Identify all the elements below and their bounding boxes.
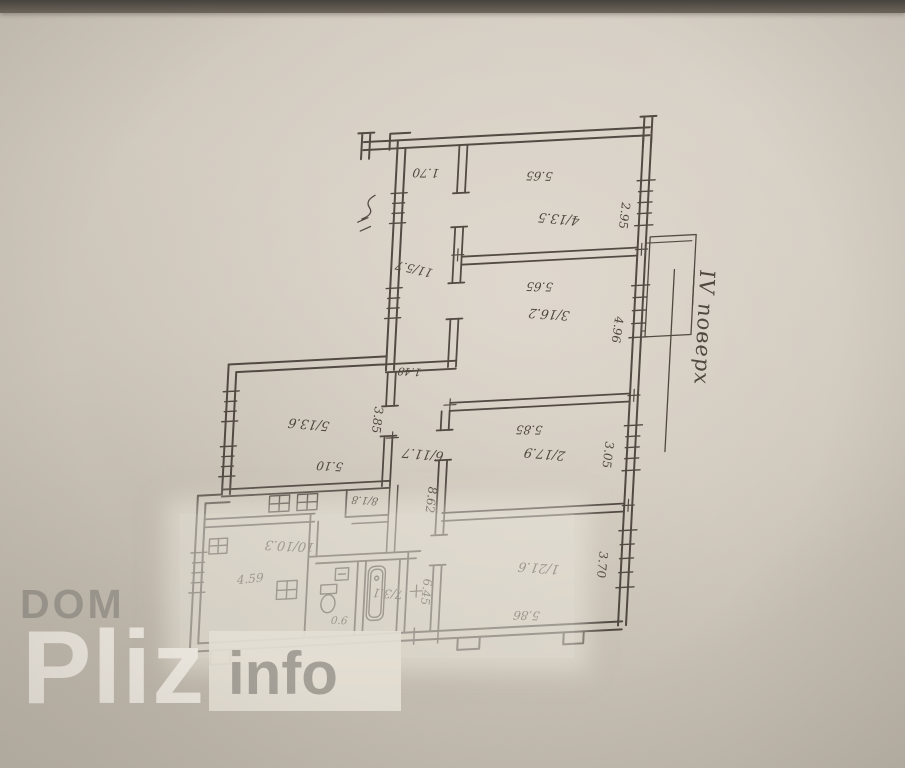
window-corridor-b [385,288,403,319]
dim-room4-width: 5.65 [525,169,553,183]
dim-room2-depth: 3.05 [599,441,616,468]
watermark-pliz: Pliz [22,616,205,720]
floor-plan-photo: 4/13.5 3/16.2 2/17.9 1/21.6 5/13.6 6/11.… [0,0,905,768]
window-room4 [635,180,655,226]
window-room5-b [219,446,237,477]
margin-scribble [357,195,375,231]
window-corridor-a [390,193,408,224]
room-4-label: 4/13.5 [537,209,582,228]
balcony [641,235,696,338]
floor-label-underline [665,269,694,452]
window-room2 [622,425,642,471]
dim-room1-depth: 3.70 [594,551,611,578]
dim-passage: 1.48 [397,364,422,377]
dim-room3-depth: 4.96 [609,315,627,344]
closet-label: 8/1.8 [350,493,379,507]
wall-cap-right [639,116,657,147]
window-room5-a [222,391,240,422]
flue-icon [297,494,318,511]
dim-room5-width: 5.10 [315,458,344,473]
window-room1 [616,530,637,588]
watermark-info: info [228,644,338,704]
wall-cap-left [357,133,374,160]
flue-icon [269,495,290,512]
corridor-label: 6/11.7 [400,444,444,463]
dim-room4-depth: 2.95 [616,201,633,229]
dim-corridor-width: 1.70 [411,166,440,180]
dim-corridor-length: 8.62 [422,486,439,513]
dim-room3-width: 5.65 [525,279,553,293]
room-2-label: 2/17.9 [523,444,568,463]
dim-room2-width: 5.85 [515,422,543,436]
room-5-label: 5/13.6 [287,414,331,433]
dim-room5-depth: 3.85 [369,406,386,433]
room-3-label: 3/16.2 [527,305,571,323]
